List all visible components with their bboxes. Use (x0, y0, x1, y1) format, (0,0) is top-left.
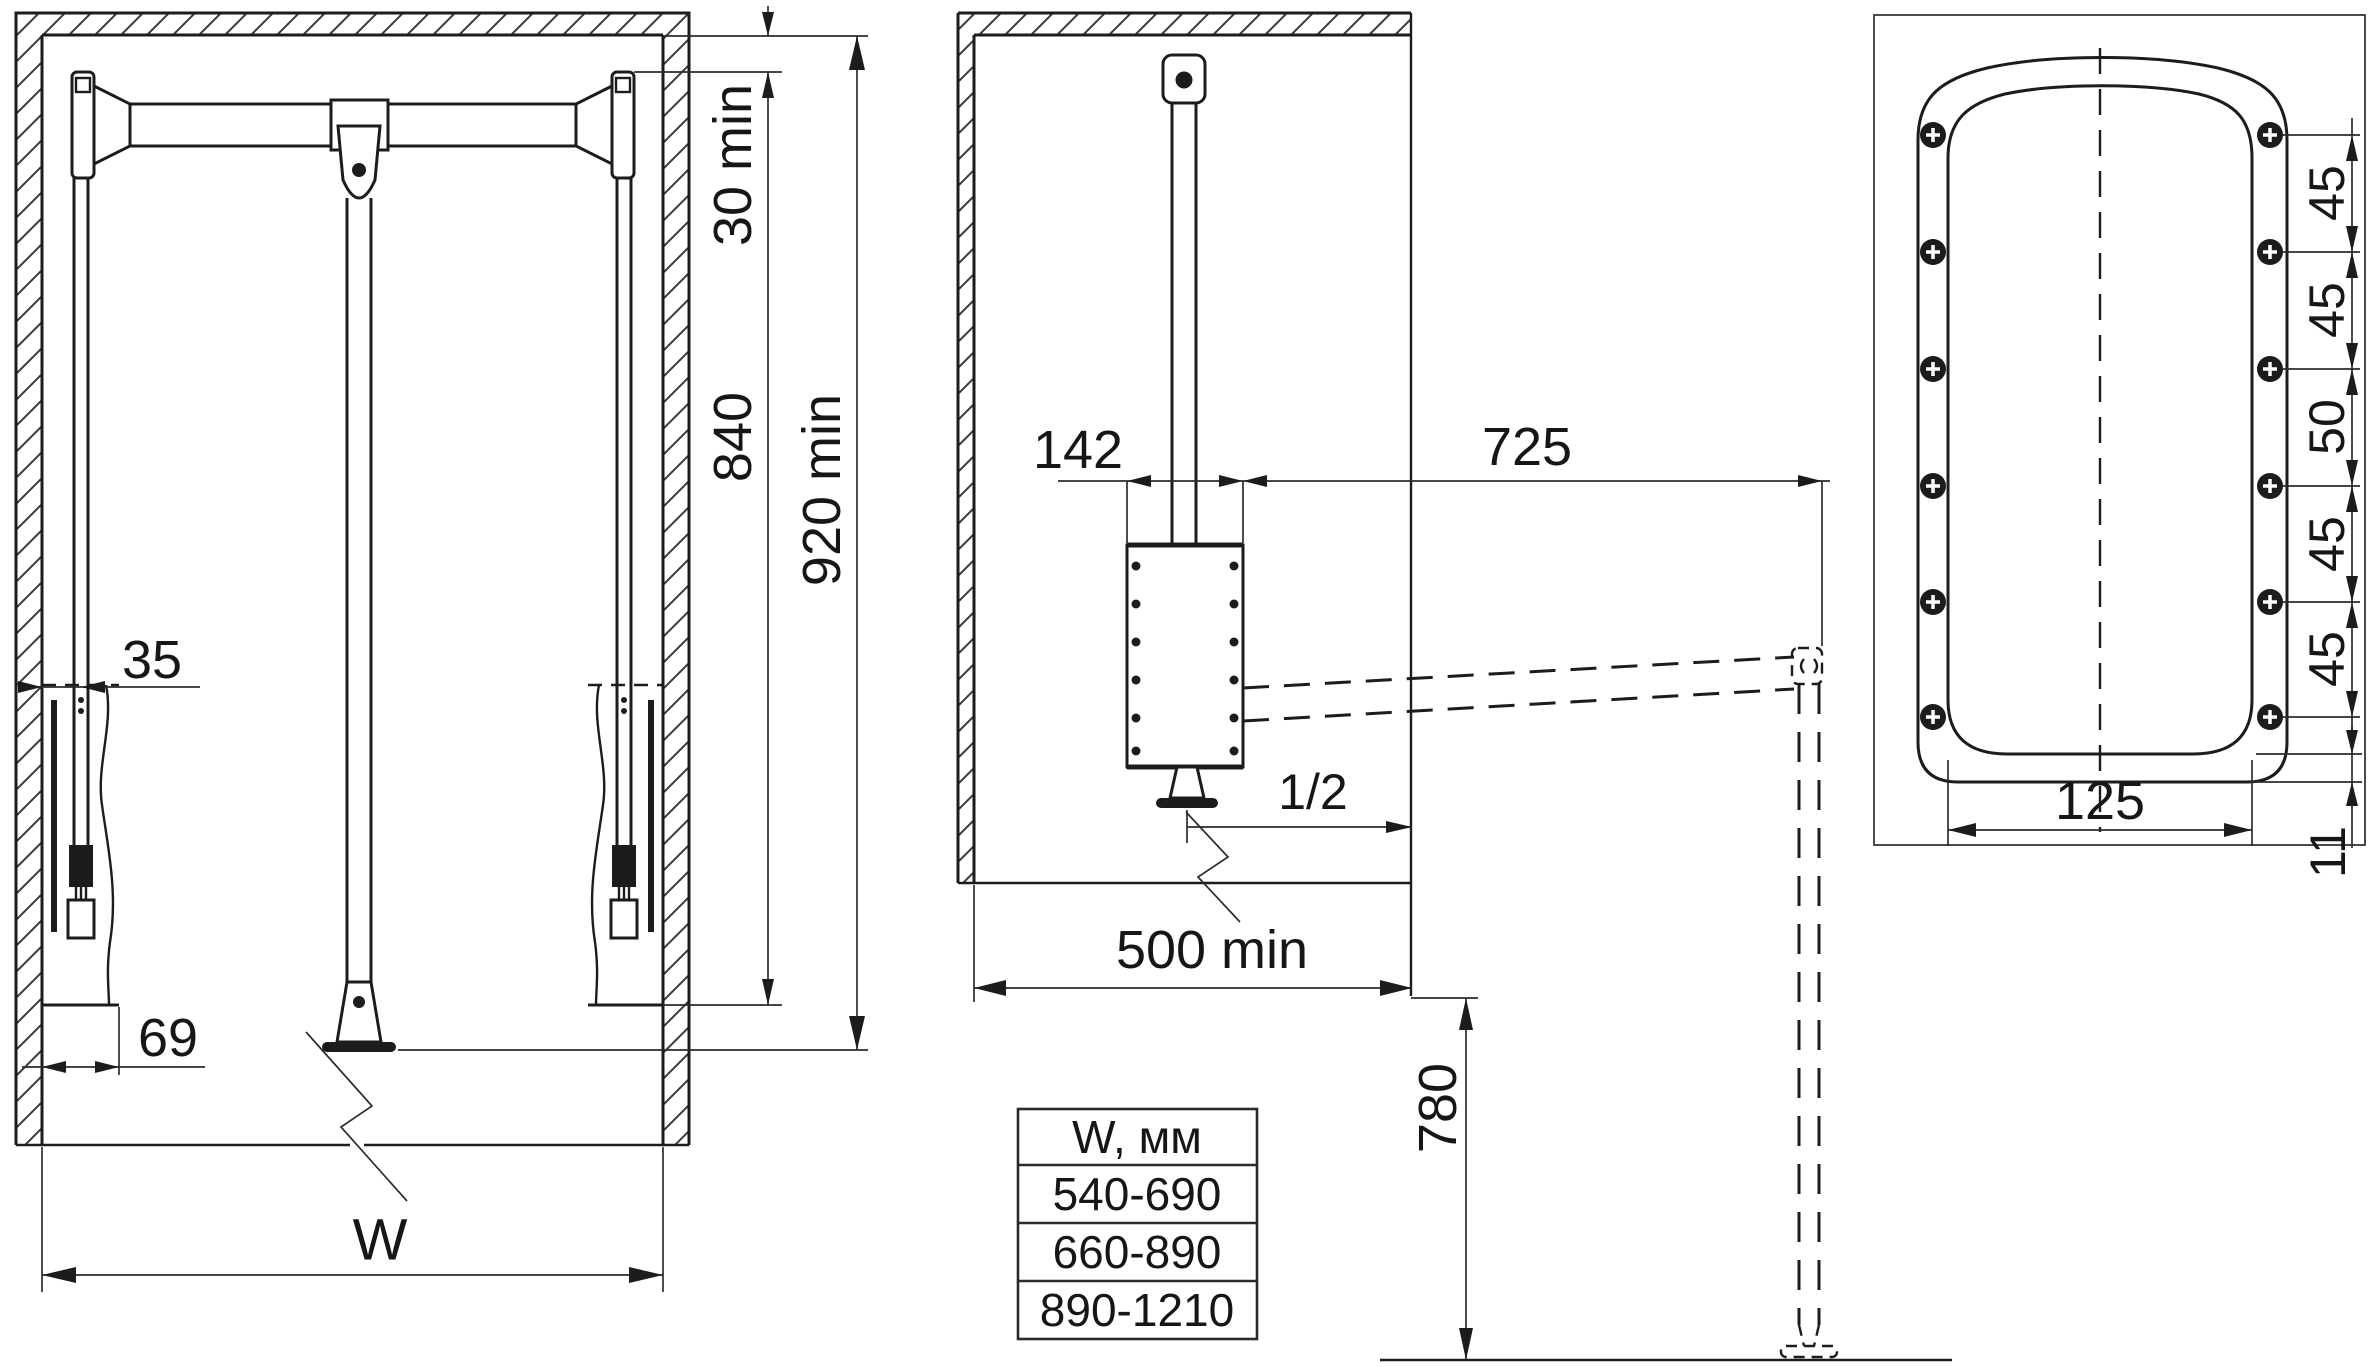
side-back-wall-hatch (958, 35, 974, 883)
dim-body-width-label: 142 (1033, 420, 1123, 480)
arrow-142-left (1127, 475, 1151, 487)
lever-handle (337, 982, 381, 1042)
screw-icon (1920, 473, 1946, 499)
arrow-half-right (1386, 821, 1412, 833)
screw-icon (2257, 704, 2283, 730)
arm-left-wavy-edge (101, 685, 113, 1005)
arm-right-dot2 (621, 708, 627, 714)
right-wall-hatch (663, 35, 689, 1145)
arrow-780-bottom (1459, 1328, 1473, 1360)
dim-lift-height-label: 840 (703, 392, 763, 482)
arrow-500-right (1380, 980, 1412, 996)
arrow-780-top (1459, 998, 1473, 1030)
dim-edge-label: 11 (2300, 826, 2356, 878)
break-mark-front (306, 1032, 407, 1201)
screw-icon (1920, 704, 1946, 730)
dim-half-label: 1/2 (1278, 764, 1348, 820)
dim-width-label: W (353, 1208, 408, 1273)
dim-floor-height-label: 780 (1408, 1063, 1468, 1153)
arm-right-dot1 (621, 697, 627, 703)
dim-min-depth-label: 500 min (1116, 920, 1308, 980)
arm-rod-left (74, 178, 88, 846)
spring-body (1127, 545, 1243, 767)
arrow-500-left (974, 980, 1006, 996)
arrow-840-bottom (762, 979, 774, 1005)
dim-reach-label: 725 (1482, 417, 1572, 477)
arrow-69-left (42, 1061, 66, 1073)
arm-right-wavy-edge (592, 685, 604, 1005)
hanging-rail-left-segment (130, 104, 331, 146)
arrow-W-right (629, 1267, 663, 1283)
extended-arm-dashed (1243, 657, 1794, 721)
lever-handle-pivot (353, 996, 365, 1008)
dim-min-height-label: 920 min (792, 394, 852, 586)
screw-icon (2257, 473, 2283, 499)
arm-rod-right (617, 178, 631, 846)
ceiling-bracket-pivot (1176, 72, 1193, 89)
arm-left-dot1 (78, 697, 84, 703)
screw-icon (2257, 239, 2283, 265)
top-panel-hatch (16, 13, 689, 35)
screw-icon (1920, 239, 1946, 265)
handle-foot-side (1156, 798, 1218, 808)
dim-arm-offset-label: 35 (122, 630, 182, 690)
screw-icon (2257, 356, 2283, 382)
plate-screws (1920, 122, 2283, 730)
size-table-row-1: 540-690 (1053, 1168, 1222, 1220)
arrow-35-right (81, 681, 105, 693)
plate-view: 45 45 50 45 45 11 125 (1874, 15, 2365, 878)
rail-cone-right (576, 86, 612, 164)
arm-left-gas-rod (51, 700, 57, 932)
spacing-label-3: 50 (2299, 399, 2355, 455)
dim-plate-width-label: 125 (2055, 771, 2145, 831)
arrow-69-right (95, 1061, 119, 1073)
arrow-920-top (849, 36, 865, 70)
lever-hub-pivot (352, 163, 366, 177)
front-view: 30 min 840 920 min 35 69 W (16, 6, 868, 1292)
arm-right-slider (611, 900, 637, 938)
arm-left-slider (68, 900, 94, 938)
handle-stem-side (1170, 767, 1204, 798)
plate-edge-dimension: 11 (2250, 726, 2362, 878)
arrow-30-top (762, 12, 774, 36)
arrow-W-left (42, 1267, 76, 1283)
extended-stem-dashed (1799, 1325, 1819, 1346)
lift-arm-left (42, 685, 119, 1005)
screw-icon (2257, 589, 2283, 615)
lever-hub (338, 126, 380, 198)
screw-icon (1920, 589, 1946, 615)
size-table: W, мм 540-690 660-890 890-1210 (1018, 1109, 1257, 1339)
arrow-725-left (1243, 475, 1267, 487)
arrow-142-right (1219, 475, 1243, 487)
plate-width-dimension: 125 (1948, 760, 2252, 846)
break-mark-side (1186, 812, 1240, 922)
extended-hook-detail (1801, 659, 1817, 673)
extended-rod-dashed (1799, 684, 1819, 1325)
cabinet-section-side (958, 13, 1411, 996)
arm-left-spring (69, 845, 93, 887)
dim-top-clearance-label: 30 min (703, 84, 763, 246)
lever-rod (347, 198, 371, 982)
front-view-dimensions: 30 min 840 920 min 35 69 W (18, 6, 868, 1292)
arm-left-splines (76, 887, 86, 900)
arrow-920-bottom (849, 1016, 865, 1050)
size-table-row-3: 890-1210 (1040, 1284, 1234, 1336)
arrow-725-right (1798, 475, 1822, 487)
screw-icon (2257, 122, 2283, 148)
screw-icon (1920, 356, 1946, 382)
arm-right-gas-rod (648, 700, 654, 932)
left-wall-hatch (16, 35, 42, 1145)
dim-arm-width-label: 69 (138, 1008, 198, 1068)
size-table-row-2: 660-890 (1053, 1226, 1222, 1278)
arm-left-dot2 (78, 708, 84, 714)
plate-spacing-dimensions: 45 45 50 45 45 (2283, 118, 2360, 734)
wardrobe-lift-front (42, 72, 663, 1052)
rail-cone-left (94, 86, 130, 164)
hanging-rail-right-segment (388, 104, 576, 146)
plate-outer-contour (1918, 58, 2287, 783)
size-table-header: W, мм (1072, 1111, 1202, 1163)
spacing-label-1: 45 (2299, 165, 2355, 221)
technical-drawing-wardrobe-lift: 30 min 840 920 min 35 69 W (0, 0, 2373, 1367)
spacing-label-2: 45 (2299, 282, 2355, 338)
lever-rod-side (1172, 103, 1196, 545)
screw-icon (1920, 122, 1946, 148)
side-top-panel-hatch (958, 13, 1411, 35)
spacing-label-4: 45 (2299, 516, 2355, 572)
arrow-840-top (762, 72, 774, 98)
extended-foot-dashed (1781, 1346, 1837, 1357)
lift-arm-right (588, 685, 663, 1005)
spacing-label-5: 45 (2299, 631, 2355, 687)
arm-right-splines (619, 887, 629, 900)
lever-foot (322, 1042, 396, 1052)
arm-right-spring (612, 845, 636, 887)
